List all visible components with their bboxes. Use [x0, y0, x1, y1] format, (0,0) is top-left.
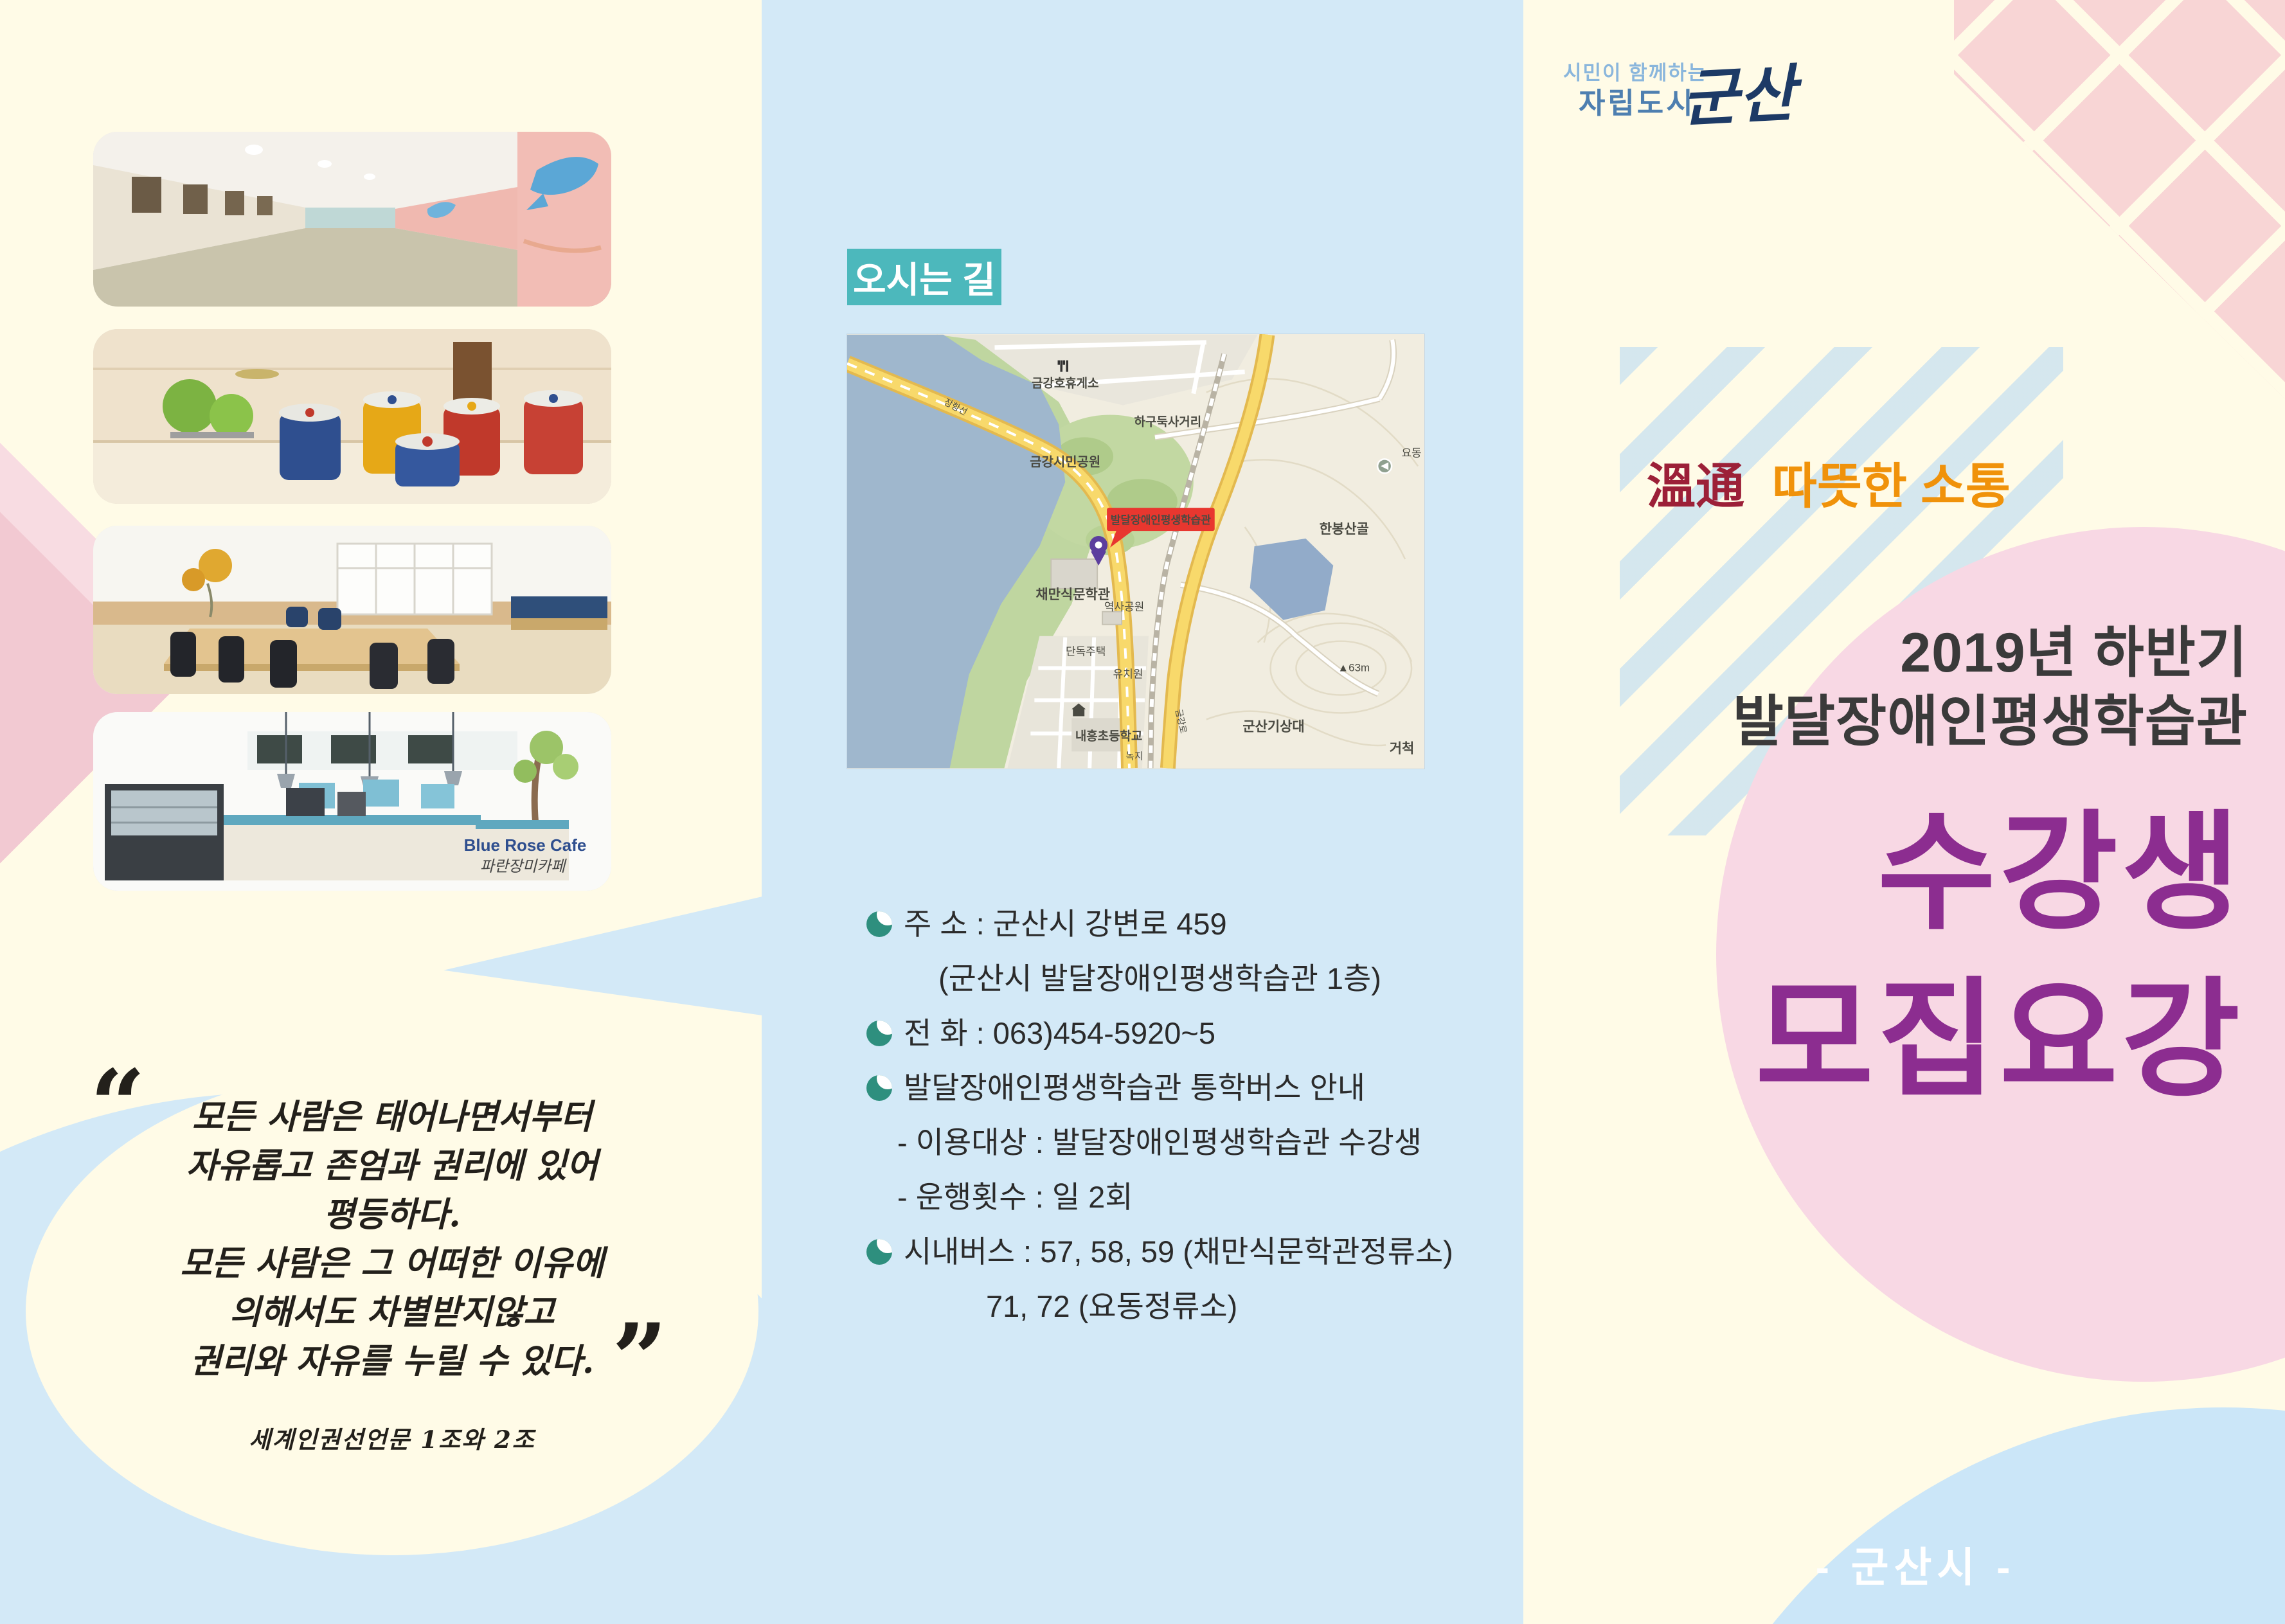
info-row-city-bus-2: 71, 72 (요동정류소): [986, 1279, 1483, 1334]
map-label-yodong: 요동: [1401, 447, 1421, 459]
quote-line: 평등하다.: [45, 1190, 739, 1239]
leaf-bullet-icon: [866, 1075, 892, 1101]
map-label-green-space: 녹지: [1125, 751, 1143, 762]
slogan-korean: 따뜻한 소통: [1772, 460, 2011, 514]
blue-wedge-decoration: [444, 897, 762, 1015]
info-text: - 운행횟수 : 일 2회: [897, 1170, 1133, 1224]
photo-meeting-room: [93, 526, 611, 694]
leaf-bullet-icon: [866, 1239, 892, 1265]
directions-section-title: 오시는 길: [853, 251, 996, 303]
location-map-image: 금강호휴게소 하구둑사거리 금강시민공원 채만식문학관 역사공원 단독주택 유치…: [847, 334, 1424, 769]
headline-students: 수강생: [1877, 768, 2244, 954]
logo-subtitle: 자립도시: [1579, 80, 1696, 121]
middle-panel-background: [762, 0, 1523, 1624]
info-text: 발달장애인평생학습관 통학버스 안내: [904, 1060, 1365, 1115]
map-label-weather-station: 군산기상대: [1242, 719, 1304, 734]
quote-line: 자유롭고 존엄과 권리에 있어: [45, 1141, 739, 1190]
map-label-geocheok: 거척: [1390, 741, 1415, 756]
footer-city-name: - 군산시 -: [1735, 1535, 2095, 1594]
photo-music-room-image: [93, 329, 611, 504]
quote-line: 모든 사람은 태어나면서부터: [45, 1093, 739, 1141]
info-row-shuttle-frequency: - 운행횟수 : 일 2회: [897, 1170, 1483, 1224]
map-literature-hall-block: [1051, 559, 1097, 589]
info-text: 시내버스 : 57, 58, 59 (채만식문학관정류소): [904, 1224, 1453, 1279]
interchange-icon: [1377, 459, 1392, 473]
info-row-shuttle: 발달장애인평생학습관 통학버스 안내: [866, 1060, 1483, 1115]
map-label-literature-hall: 채만식문학관: [1035, 587, 1110, 602]
quote-attribution: 세계인권선언문 1조와 2조: [45, 1415, 739, 1464]
location-map: 금강호휴게소 하구둑사거리 금강시민공원 채만식문학관 역사공원 단독주택 유치…: [847, 334, 1424, 769]
map-label-kindergarten: 유치원: [1113, 668, 1143, 681]
info-text: 전 화 : 063)454-5920~5: [904, 1006, 1215, 1060]
quote-line: 의해서도 차별받지않고: [45, 1288, 739, 1337]
title-organization: 발달장애인평생학습관: [1733, 676, 2248, 756]
info-row-city-bus: 시내버스 : 57, 58, 59 (채만식문학관정류소): [866, 1224, 1483, 1279]
info-row-address: 주 소 : 군산시 강변로 459: [866, 897, 1483, 951]
info-text: - 이용대상 : 발달장애인평생학습관 수강생: [897, 1115, 1422, 1170]
logo-city-name: 군산: [1679, 43, 1797, 138]
photo-cafe-image: Blue Rose Cafe 파란장미카페: [93, 712, 611, 891]
contact-info-list: 주 소 : 군산시 강변로 459 (군산시 발달장애인평생학습관 1층) 전 …: [866, 897, 1483, 1334]
map-label-rest-area: 금강호휴게소: [1032, 377, 1099, 391]
headline-recruitment: 모집요강: [1755, 935, 2244, 1121]
info-text: 주 소 : 군산시 강변로 459: [904, 897, 1227, 951]
leaf-bullet-icon: [866, 911, 892, 937]
info-text: (군산시 발달장애인평생학습관 1층): [938, 951, 1381, 1006]
quote-line: 권리와 자유를 누릴 수 있다.: [45, 1337, 739, 1386]
map-label-elementary-school: 내흥초등학교: [1075, 728, 1143, 743]
gunsan-city-logo: 시민이 함께하는 자립도시 군산: [1555, 50, 1813, 121]
map-marker-label: 발달장애인평생학습관: [1111, 513, 1211, 526]
info-row-address-detail: (군산시 발달장애인평생학습관 1층): [938, 951, 1483, 1006]
map-label-intersection: 하구둑사거리: [1134, 415, 1202, 429]
info-row-shuttle-target: - 이용대상 : 발달장애인평생학습관 수강생: [897, 1115, 1483, 1170]
photo-hallway: [93, 132, 611, 307]
photo-meeting-room-image: [93, 526, 611, 694]
info-text: 71, 72 (요동정류소): [986, 1279, 1237, 1334]
cafe-sign-english: Blue Rose Cafe: [464, 835, 587, 855]
photo-music-room: [93, 329, 611, 504]
photo-hallway-image: [93, 132, 611, 307]
map-label-housing: 단독주택: [1066, 646, 1106, 658]
map-label-mountain-valley: 한봉산골: [1320, 522, 1369, 537]
brochure-poster: Blue Rose Cafe 파란장미카페 “ ” 모든 사람은 태어나면서부터…: [0, 0, 2285, 1624]
photo-cafe: Blue Rose Cafe 파란장미카페: [93, 712, 611, 891]
slogan: 溫通 따뜻한 소통: [1647, 447, 2011, 517]
map-label-history-park: 역사공원: [1104, 601, 1144, 613]
human-rights-quote: 모든 사람은 태어나면서부터 자유롭고 존엄과 권리에 있어 평등하다. 모든 …: [45, 1093, 739, 1464]
cafe-sign-korean: 파란장미카페: [480, 858, 567, 875]
map-label-elevation: ▲63m: [1338, 662, 1370, 674]
slogan-hanja: 溫通: [1647, 458, 1744, 515]
leaf-bullet-icon: [866, 1021, 892, 1046]
quote-line: 모든 사람은 그 어떠한 이유에: [45, 1239, 739, 1288]
info-row-phone: 전 화 : 063)454-5920~5: [866, 1006, 1483, 1060]
map-label-citizen-park: 금강시민공원: [1030, 454, 1100, 469]
directions-section-tag: 오시는 길: [847, 249, 1001, 305]
